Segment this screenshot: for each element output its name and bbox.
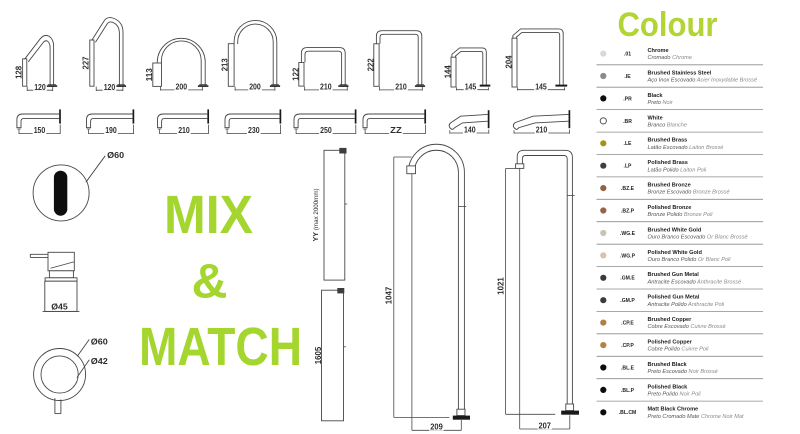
svg-text:Cromado Chrome: Cromado Chrome xyxy=(648,55,692,61)
svg-text:Ø60: Ø60 xyxy=(107,150,124,160)
svg-text:.PR: .PR xyxy=(623,96,632,102)
svg-text:210: 210 xyxy=(536,125,548,135)
svg-text:210: 210 xyxy=(395,82,407,92)
svg-text:1021: 1021 xyxy=(496,277,506,295)
svg-text:Aço Inox Escovado Acier Inoxyd: Aço Inox Escovado Acier Inoxydable Bross… xyxy=(647,78,758,84)
svg-text:128: 128 xyxy=(13,66,23,79)
svg-text:Polished White Gold: Polished White Gold xyxy=(648,250,703,256)
svg-text:Polished Gun Metal: Polished Gun Metal xyxy=(648,295,700,301)
svg-text:MATCH: MATCH xyxy=(139,318,302,377)
svg-text:Cobre Escovado Cuivre Brossé: Cobre Escovado Cuivre Brossé xyxy=(648,324,726,330)
svg-text:Preto Polido Noir Poli: Preto Polido Noir Poli xyxy=(648,392,702,398)
svg-text:YY (max 2000mm): YY (max 2000mm) xyxy=(311,188,320,241)
svg-text:Cobre Polido Cuivre Poli: Cobre Polido Cuivre Poli xyxy=(648,347,710,353)
svg-text:Bronze Escovado Bronze Brossé: Bronze Escovado Bronze Brossé xyxy=(648,190,730,196)
svg-text:.CP.P: .CP.P xyxy=(621,343,634,349)
svg-text:222: 222 xyxy=(365,58,375,71)
svg-text:ZZ: ZZ xyxy=(390,125,402,135)
svg-text:144: 144 xyxy=(443,65,453,78)
svg-text:.BZ.P: .BZ.P xyxy=(621,208,635,214)
svg-text:Antracite Escovado Anthracite: Antracite Escovado Anthracite Brossé xyxy=(647,279,742,285)
svg-text:122: 122 xyxy=(290,67,300,80)
svg-text:.BR: .BR xyxy=(623,119,632,125)
svg-text:120: 120 xyxy=(34,82,46,92)
svg-text:150: 150 xyxy=(34,125,46,135)
svg-text:Polished Brass: Polished Brass xyxy=(648,160,688,166)
svg-text:213: 213 xyxy=(220,58,230,71)
svg-text:Matt Black Chrome: Matt Black Chrome xyxy=(648,407,699,413)
svg-text:&: & xyxy=(192,255,228,309)
svg-text:.CP.E: .CP.E xyxy=(621,321,634,327)
svg-text:.BL.E: .BL.E xyxy=(621,365,635,371)
svg-text:250: 250 xyxy=(320,125,332,135)
svg-text:Branco Blanche: Branco Blanche xyxy=(648,123,688,129)
svg-text:Brushed Black: Brushed Black xyxy=(648,362,688,368)
svg-text:190: 190 xyxy=(105,125,117,135)
svg-text:Ouro Branco Escovado Or Blanc: Ouro Branco Escovado Or Blanc Brossé xyxy=(648,235,748,241)
svg-text:.BZ.E: .BZ.E xyxy=(621,186,635,192)
svg-text:Polished Copper: Polished Copper xyxy=(648,340,693,346)
svg-text:Colour: Colour xyxy=(618,6,718,44)
svg-text:MIX: MIX xyxy=(164,186,253,245)
svg-text:204: 204 xyxy=(504,55,514,68)
svg-text:Bronze Polido Bronze Poli: Bronze Polido Bronze Poli xyxy=(648,212,714,218)
svg-text:.LP: .LP xyxy=(624,164,633,170)
svg-text:.WG.E: .WG.E xyxy=(620,231,636,237)
svg-text:Ø60: Ø60 xyxy=(91,337,108,347)
svg-text:120: 120 xyxy=(104,82,116,92)
svg-text:210: 210 xyxy=(178,125,190,135)
svg-text:Antracite Polido Anthracite Po: Antracite Polido Anthracite Poli xyxy=(647,302,725,308)
svg-text:Brushed White Gold: Brushed White Gold xyxy=(648,227,702,233)
svg-text:.BL.P: .BL.P xyxy=(621,388,635,394)
svg-text:Brushed Brass: Brushed Brass xyxy=(648,138,688,144)
svg-text:Ø42: Ø42 xyxy=(91,356,108,366)
svg-text:207: 207 xyxy=(538,420,551,430)
svg-text:Polished Bronze: Polished Bronze xyxy=(648,205,692,211)
svg-text:Brushed Stainless Steel: Brushed Stainless Steel xyxy=(648,70,712,76)
svg-text:Polished Black: Polished Black xyxy=(648,384,689,390)
svg-text:Black: Black xyxy=(648,93,664,99)
svg-text:Chrome: Chrome xyxy=(648,48,669,54)
svg-text:Ø45: Ø45 xyxy=(51,301,68,311)
svg-text:145: 145 xyxy=(535,81,547,91)
svg-text:1605: 1605 xyxy=(313,346,323,364)
svg-text:.BL.CM: .BL.CM xyxy=(619,410,637,416)
svg-text:200: 200 xyxy=(176,82,188,92)
svg-text:Brushed Bronze: Brushed Bronze xyxy=(648,183,691,189)
svg-text:Preto Cromado Mate Chrome Noir: Preto Cromado Mate Chrome Noir Mat xyxy=(648,414,745,420)
svg-text:Brushed Gun Metal: Brushed Gun Metal xyxy=(648,272,700,278)
svg-text:145: 145 xyxy=(465,81,477,91)
svg-text:.IE: .IE xyxy=(624,74,631,80)
svg-text:Preto Escovado Noir Brossé: Preto Escovado Noir Brossé xyxy=(648,369,718,375)
svg-text:230: 230 xyxy=(248,125,260,135)
svg-text:.01: .01 xyxy=(624,52,631,58)
svg-text:Preto Noir: Preto Noir xyxy=(648,100,674,106)
svg-text:Latão Escovado Laiton Brossé: Latão Escovado Laiton Brossé xyxy=(648,145,724,151)
svg-text:209: 209 xyxy=(430,422,443,432)
svg-text:.GM.E: .GM.E xyxy=(620,276,635,282)
svg-text:.WG.P: .WG.P xyxy=(620,253,636,259)
svg-text:.LE: .LE xyxy=(624,141,633,147)
svg-text:113: 113 xyxy=(144,68,154,81)
svg-text:White: White xyxy=(648,115,663,121)
svg-text:Latão Polido Laiton Poli: Latão Polido Laiton Poli xyxy=(648,167,708,173)
svg-text:140: 140 xyxy=(464,125,476,135)
svg-text:.GM.P: .GM.P xyxy=(620,298,635,304)
svg-text:Brushed Copper: Brushed Copper xyxy=(648,317,693,323)
svg-text:Ouro Branco Polido Or Blanc Po: Ouro Branco Polido Or Blanc Poli xyxy=(648,257,732,263)
svg-text:1047: 1047 xyxy=(384,286,394,304)
svg-text:210: 210 xyxy=(320,82,332,92)
svg-text:200: 200 xyxy=(249,82,261,92)
svg-text:227: 227 xyxy=(81,56,91,69)
